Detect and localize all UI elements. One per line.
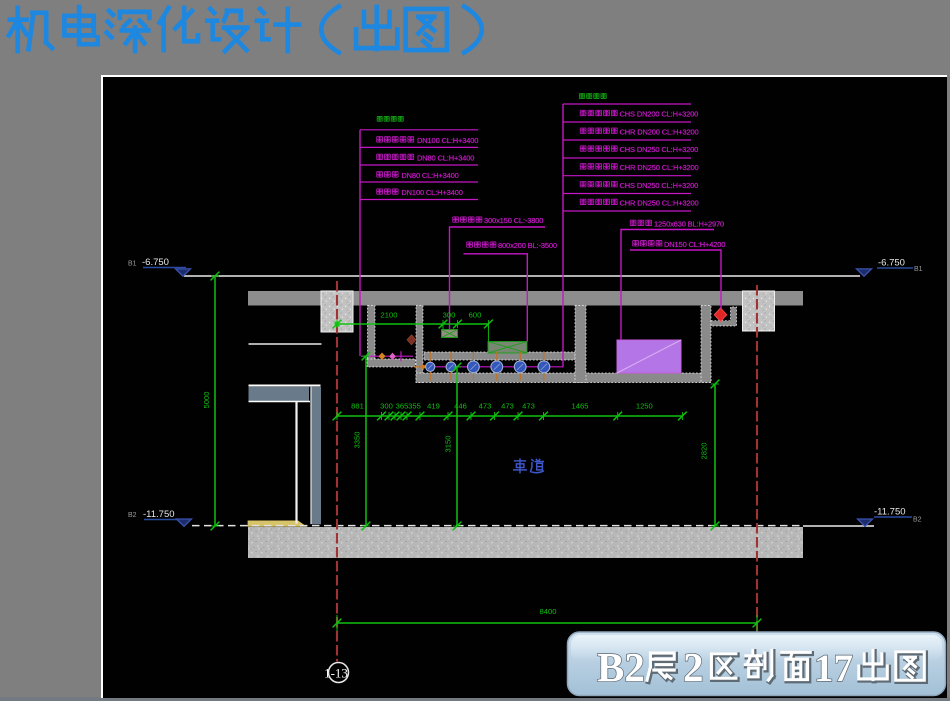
svg-text:-6.750: -6.750 — [142, 257, 169, 268]
svg-text:300: 300 — [380, 402, 393, 411]
svg-text:419: 419 — [427, 402, 440, 411]
svg-text:B1: B1 — [128, 261, 137, 268]
svg-text:DN150 CL:H+4200: DN150 CL:H+4200 — [664, 240, 725, 249]
svg-text:1465: 1465 — [572, 402, 589, 411]
svg-text:B2: B2 — [128, 512, 137, 519]
svg-text:473: 473 — [522, 402, 535, 411]
svg-text:CHR DN250 CL:H+3200: CHR DN250 CL:H+3200 — [620, 199, 699, 208]
svg-text:600: 600 — [469, 311, 482, 320]
svg-text:1-13: 1-13 — [324, 666, 348, 681]
svg-text:-11.750: -11.750 — [143, 509, 175, 520]
svg-text:-6.750: -6.750 — [878, 258, 905, 269]
svg-text:DN80 CL:H+3400: DN80 CL:H+3400 — [401, 171, 458, 180]
svg-text:473: 473 — [501, 402, 514, 411]
svg-text:17: 17 — [814, 647, 853, 690]
svg-text:1250x630 BL:H+2970: 1250x630 BL:H+2970 — [654, 220, 724, 229]
svg-text:CHS DN250 CL:H+3200: CHS DN250 CL:H+3200 — [620, 145, 699, 154]
svg-text:B2: B2 — [913, 517, 922, 524]
svg-text:881: 881 — [351, 402, 364, 411]
svg-text:5000: 5000 — [202, 392, 211, 409]
svg-text:DN100 CL:H+3400: DN100 CL:H+3400 — [417, 136, 478, 145]
svg-text:2: 2 — [683, 644, 704, 690]
svg-text:CHS DN200 CL:H+3200: CHS DN200 CL:H+3200 — [620, 110, 699, 119]
svg-text:CHR DN200 CL:H+3200: CHR DN200 CL:H+3200 — [620, 127, 699, 136]
svg-text:2100: 2100 — [381, 311, 398, 320]
svg-text:CHS DN250 CL:H+3200: CHS DN250 CL:H+3200 — [620, 181, 699, 190]
svg-text:3150: 3150 — [444, 436, 453, 453]
svg-text:DN80 CL:H+3400: DN80 CL:H+3400 — [417, 154, 474, 163]
svg-text:300x150 CL:-3800: 300x150 CL:-3800 — [484, 216, 543, 225]
svg-text:446: 446 — [454, 402, 467, 411]
svg-text:8400: 8400 — [540, 607, 557, 616]
svg-text:300: 300 — [443, 311, 456, 320]
svg-text:DN100 CL:H+3400: DN100 CL:H+3400 — [401, 188, 462, 197]
svg-text:473: 473 — [479, 402, 492, 411]
svg-text:365: 365 — [396, 402, 409, 411]
svg-text:B2: B2 — [597, 644, 645, 690]
svg-text:3350: 3350 — [353, 432, 362, 449]
svg-text:2820: 2820 — [700, 443, 709, 460]
svg-text:355: 355 — [408, 402, 421, 411]
svg-text:-11.750: -11.750 — [874, 507, 906, 518]
svg-text:CHR DN250 CL:H+3200: CHR DN250 CL:H+3200 — [620, 163, 699, 172]
svg-text:800x200 BL:-3500: 800x200 BL:-3500 — [498, 241, 557, 250]
svg-text:1250: 1250 — [636, 402, 653, 411]
svg-text:B1: B1 — [914, 266, 923, 273]
